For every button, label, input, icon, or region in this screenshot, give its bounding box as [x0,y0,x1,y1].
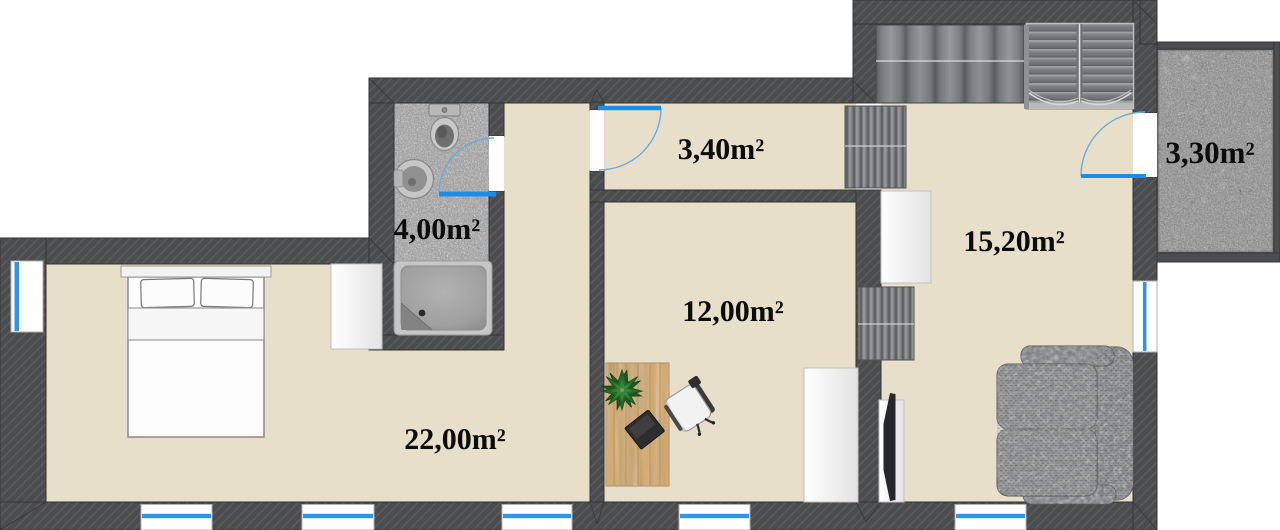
svg-text:12,00m²: 12,00m² [682,295,783,328]
svg-text:3,30m²: 3,30m² [1165,135,1254,170]
svg-text:15,20m²: 15,20m² [963,225,1064,258]
svg-text:3,40m²: 3,40m² [678,133,764,166]
svg-text:22,00m²: 22,00m² [404,423,505,456]
svg-text:4,00m²: 4,00m² [394,213,480,246]
